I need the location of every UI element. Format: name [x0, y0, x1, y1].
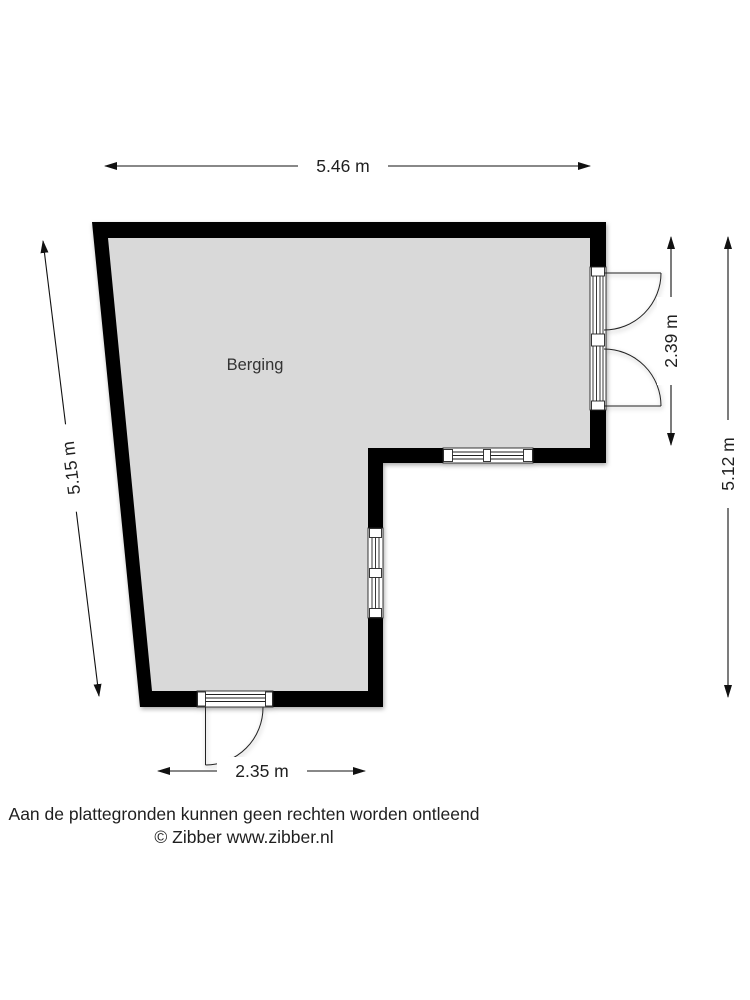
room-label: Berging [227, 356, 284, 374]
dimension-bottom: 2.35 m [158, 757, 365, 785]
dimension-right-total-label: 5.12 m [718, 437, 738, 491]
footer-disclaimer: Aan de plattegronden kunnen geen rechten… [9, 804, 480, 824]
floor-area-berging [108, 238, 590, 691]
dimension-top-label: 5.46 m [316, 156, 370, 176]
footer-credit: © Zibber www.zibber.nl [154, 827, 333, 847]
door-swing-bottom [604, 349, 661, 406]
entry-door-bottom [197, 691, 273, 765]
dimension-left: 5.15 m [43, 241, 99, 696]
double-door-right [590, 267, 661, 410]
dimension-bottom-label: 2.35 m [235, 761, 289, 781]
window-horizontal [443, 448, 533, 463]
dimension-right-door: 2.39 m [657, 237, 685, 445]
dimension-right-door-label: 2.39 m [661, 314, 681, 368]
floorplan-page: Berging 5.46 m 5.15 m 2.39 m 5.12 m 2.35… [0, 0, 750, 1000]
floorplan-svg: Berging 5.46 m 5.15 m 2.39 m 5.12 m 2.35… [0, 0, 750, 1000]
dimension-top: 5.46 m [105, 152, 590, 180]
window-vertical [368, 528, 383, 618]
building [92, 222, 661, 765]
door-swing-entry [206, 707, 264, 765]
door-swing-top [604, 273, 661, 330]
dimension-right-total: 5.12 m [714, 237, 742, 697]
